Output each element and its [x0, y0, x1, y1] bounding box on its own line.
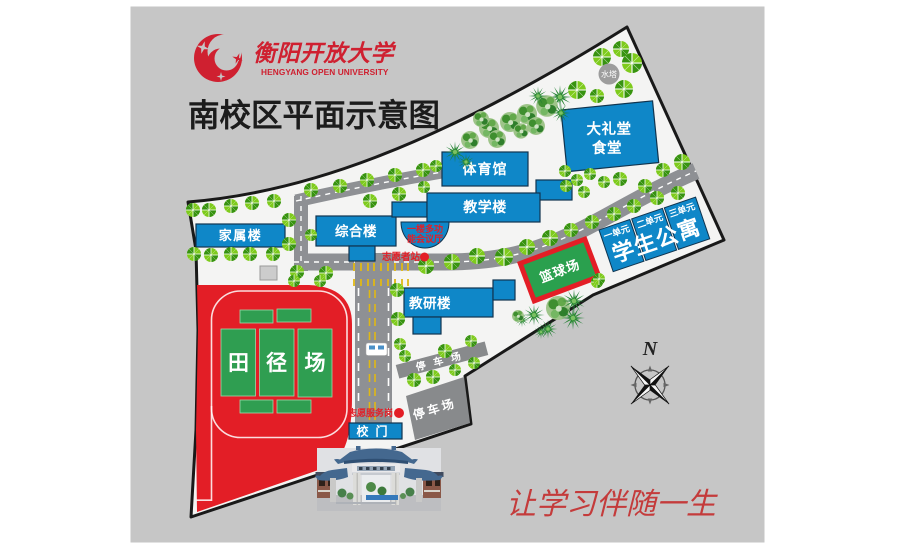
- svg-text:南校区平面示意图: 南校区平面示意图: [188, 97, 440, 133]
- svg-text:食堂: 食堂: [592, 139, 622, 157]
- svg-text:水塔: 水塔: [601, 69, 617, 79]
- svg-text:能会议厅: 能会议厅: [407, 233, 443, 244]
- svg-text:让学习伴随一生: 让学习伴随一生: [506, 488, 718, 521]
- svg-text:志愿者站: 志愿者站: [382, 251, 421, 263]
- svg-text:径: 径: [266, 351, 287, 375]
- svg-text:综合楼: 综合楼: [335, 223, 377, 239]
- svg-text:校门: 校门: [356, 424, 394, 439]
- svg-text:场: 场: [305, 352, 326, 375]
- svg-text:体育馆: 体育馆: [463, 161, 508, 177]
- svg-text:大礼堂: 大礼堂: [587, 120, 632, 138]
- svg-text:志愿服务岗: 志愿服务岗: [348, 407, 393, 418]
- svg-text:田: 田: [228, 352, 249, 375]
- svg-text:一楼多功: 一楼多功: [407, 223, 443, 234]
- svg-text:衡阳开放大学: 衡阳开放大学: [253, 40, 397, 66]
- svg-text:家属楼: 家属楼: [219, 228, 263, 243]
- svg-text:N: N: [642, 338, 659, 360]
- svg-text:教学楼: 教学楼: [463, 199, 507, 215]
- svg-text:教研楼: 教研楼: [409, 295, 451, 311]
- svg-text:HENGYANG OPEN UNIVERSITY: HENGYANG OPEN UNIVERSITY: [261, 67, 389, 77]
